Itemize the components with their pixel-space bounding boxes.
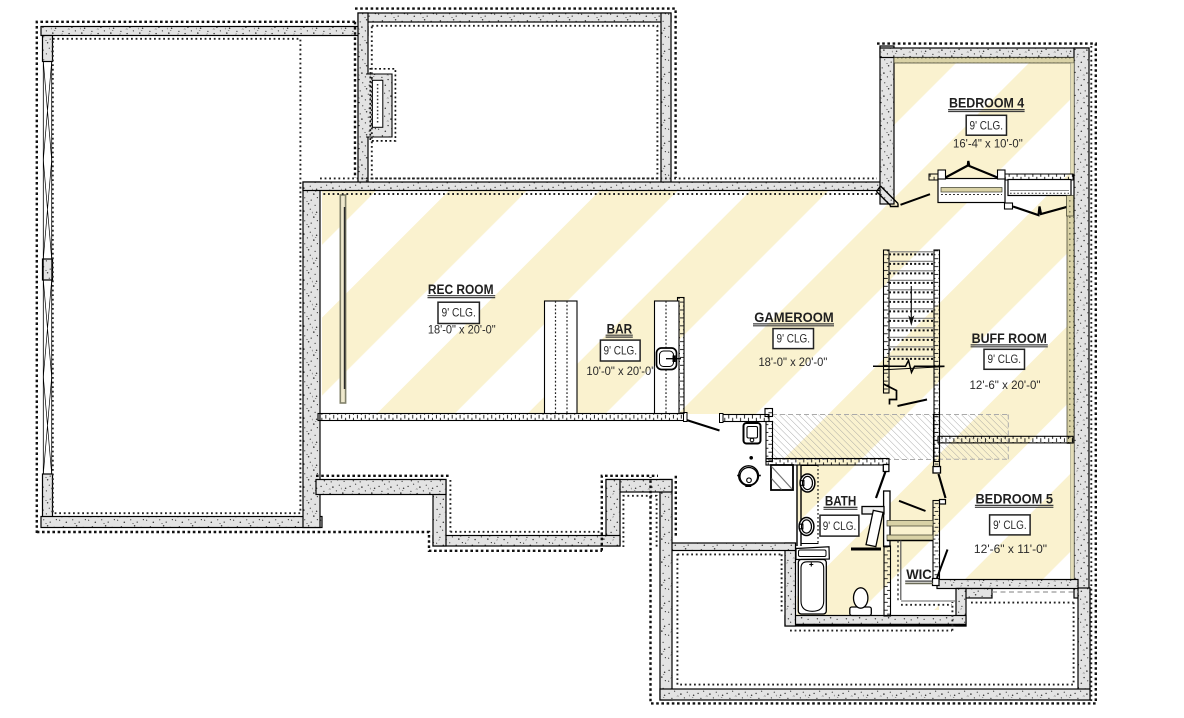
svg-text:BATH: BATH xyxy=(825,493,857,508)
svg-text:REC ROOM: REC ROOM xyxy=(428,282,494,297)
svg-text:10'-0" x 20'-0": 10'-0" x 20'-0" xyxy=(586,365,655,378)
svg-text:BEDROOM 5: BEDROOM 5 xyxy=(975,491,1053,506)
svg-text:12'-6" x 11'-0": 12'-6" x 11'-0" xyxy=(974,543,1047,556)
svg-text:9' CLG.: 9' CLG. xyxy=(442,307,476,320)
svg-text:9' CLG.: 9' CLG. xyxy=(970,119,1004,132)
svg-text:BUFF ROOM: BUFF ROOM xyxy=(972,331,1047,346)
svg-text:BAR: BAR xyxy=(607,321,633,336)
svg-text:BEDROOM 4: BEDROOM 4 xyxy=(949,96,1025,111)
svg-text:18'-0" x 20'-0": 18'-0" x 20'-0" xyxy=(428,324,496,337)
svg-text:16'-4" x 10'-0": 16'-4" x 10'-0" xyxy=(953,138,1023,151)
svg-text:9' CLG.: 9' CLG. xyxy=(988,353,1022,366)
svg-text:9' CLG.: 9' CLG. xyxy=(993,519,1027,532)
svg-text:18'-0" x 20'-0": 18'-0" x 20'-0" xyxy=(758,356,827,369)
svg-text:GAMEROOM: GAMEROOM xyxy=(754,310,833,325)
svg-text:9' CLG.: 9' CLG. xyxy=(604,344,638,357)
svg-text:9' CLG.: 9' CLG. xyxy=(823,520,857,533)
svg-text:9' CLG.: 9' CLG. xyxy=(777,333,811,346)
svg-text:WIC: WIC xyxy=(906,567,932,582)
svg-text:12'-6" x 20'-0": 12'-6" x 20'-0" xyxy=(970,379,1041,392)
